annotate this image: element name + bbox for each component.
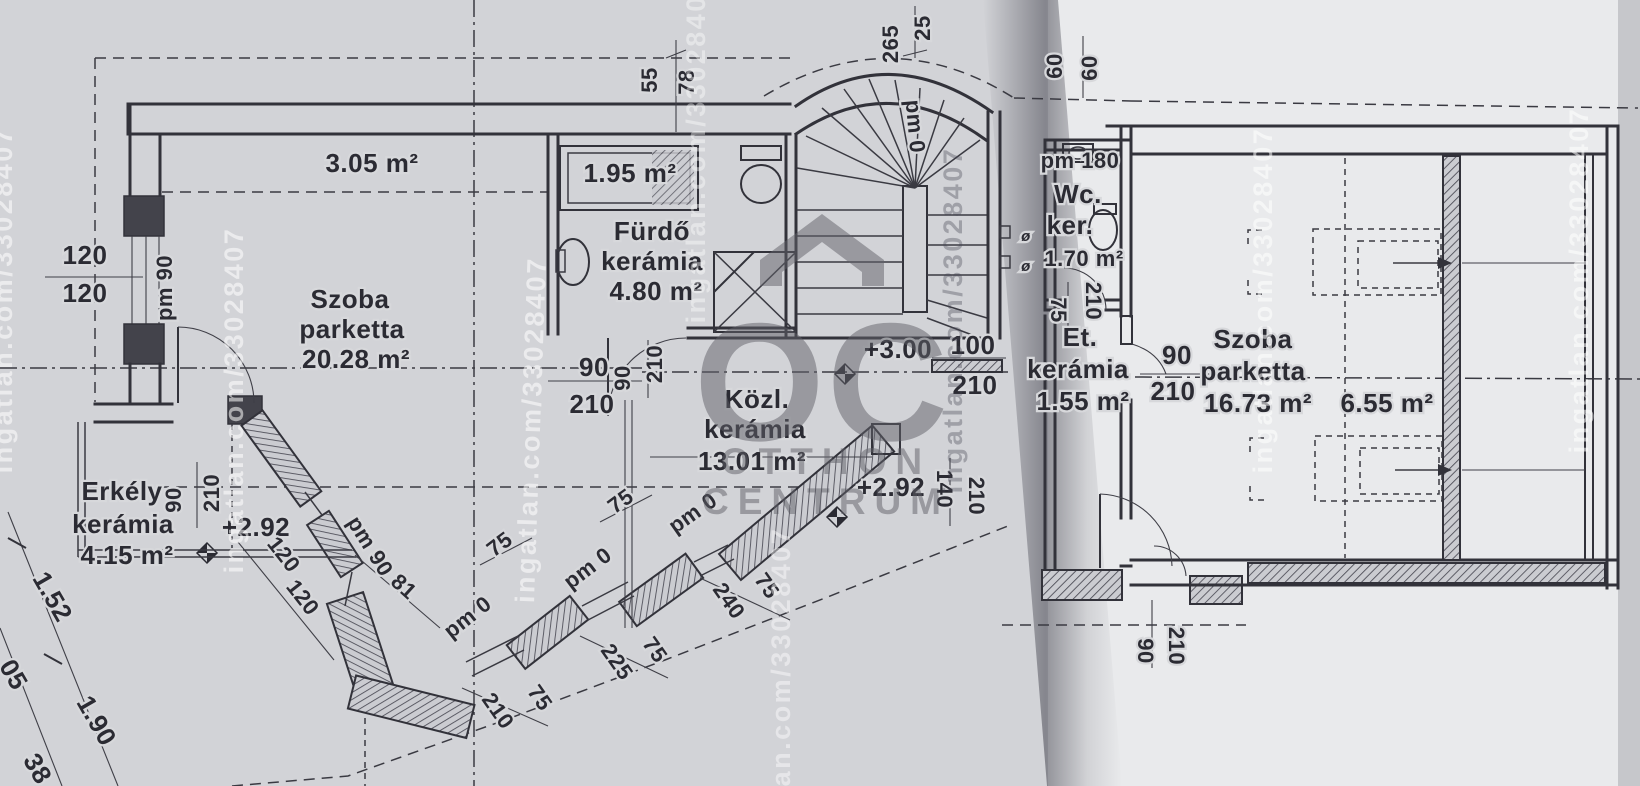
room-area: 1.70 m²	[1044, 246, 1123, 271]
dim-label: 90	[1133, 638, 1158, 663]
room-floor: kerámia	[1027, 354, 1129, 384]
room-area: 4.15 m²	[80, 540, 173, 570]
hatched-wall	[1042, 570, 1122, 600]
floorplan-page: 3.05 m² 120 120 pm 90 Szoba parketta 20.…	[0, 0, 1640, 786]
diameter-mark: ø	[1021, 258, 1031, 275]
dim-label: 120	[63, 278, 108, 308]
room-name: Szoba	[310, 284, 389, 314]
watermark-text: ingatlan.com/33028407	[1564, 107, 1594, 454]
floorplan-drawing: 3.05 m² 120 120 pm 90 Szoba parketta 20.…	[0, 0, 1640, 786]
room-area: 20.28 m²	[302, 344, 410, 374]
room-floor: kerámia	[72, 509, 174, 539]
dim-label: 210	[1081, 282, 1106, 320]
dim-label: 75	[1046, 297, 1071, 322]
dim-label: 265	[878, 25, 903, 63]
watermark-text: ingatlan.com/33028407	[0, 127, 18, 474]
hatched-wall	[1248, 563, 1605, 583]
room-name: Wc.	[1054, 179, 1102, 209]
area-label: 1.95 m²	[583, 158, 676, 188]
room-floor: ker.	[1047, 210, 1094, 240]
dim-label: 25	[910, 15, 935, 40]
chimney-hatch	[1443, 156, 1460, 560]
wall-pier	[124, 196, 164, 236]
watermark-text: ingatlan.com/33028407	[1248, 127, 1278, 474]
dim-label: 210	[642, 345, 667, 383]
logo-line1: OTTHON	[721, 441, 931, 482]
dim-label: 90	[161, 487, 186, 512]
room-name: Erkély	[81, 476, 162, 506]
dim-label: pm 90	[152, 255, 177, 321]
dim-label: 210	[570, 389, 615, 419]
area-label: 6.55 m²	[1340, 388, 1433, 418]
dim-label: pm 180	[1041, 148, 1120, 173]
watermark-text: ingatlan.com/33028407	[766, 527, 796, 786]
room-floor: parketta	[299, 314, 404, 344]
watermark-text: ingatlan.com/33028407	[219, 227, 249, 574]
dim-label: 60	[1077, 55, 1102, 80]
dim-label: 210	[1151, 376, 1196, 406]
dim-label: 55	[637, 67, 662, 92]
room-name: Fürdő	[614, 216, 690, 246]
page-edge	[1618, 0, 1640, 786]
hatched-wall	[1190, 576, 1242, 604]
dim-label: 210	[1164, 627, 1189, 665]
dim-label: 90	[1162, 340, 1192, 370]
wall-pier	[124, 324, 164, 364]
watermark-text: ingatlan.com/33028407	[681, 0, 711, 323]
dim-label: pm 0	[901, 99, 931, 154]
dim-label: 90	[610, 365, 635, 390]
room-area: 1.55 m²	[1036, 386, 1129, 416]
logo-line2: CENTRUM	[702, 481, 950, 522]
area-label: 3.05 m²	[325, 148, 418, 178]
dim-label: 120	[63, 240, 108, 270]
dim-label: 60	[1042, 53, 1067, 78]
diameter-mark: ø	[1021, 228, 1031, 245]
dim-label: 90	[579, 352, 609, 382]
room-name: Et.	[1063, 322, 1098, 352]
